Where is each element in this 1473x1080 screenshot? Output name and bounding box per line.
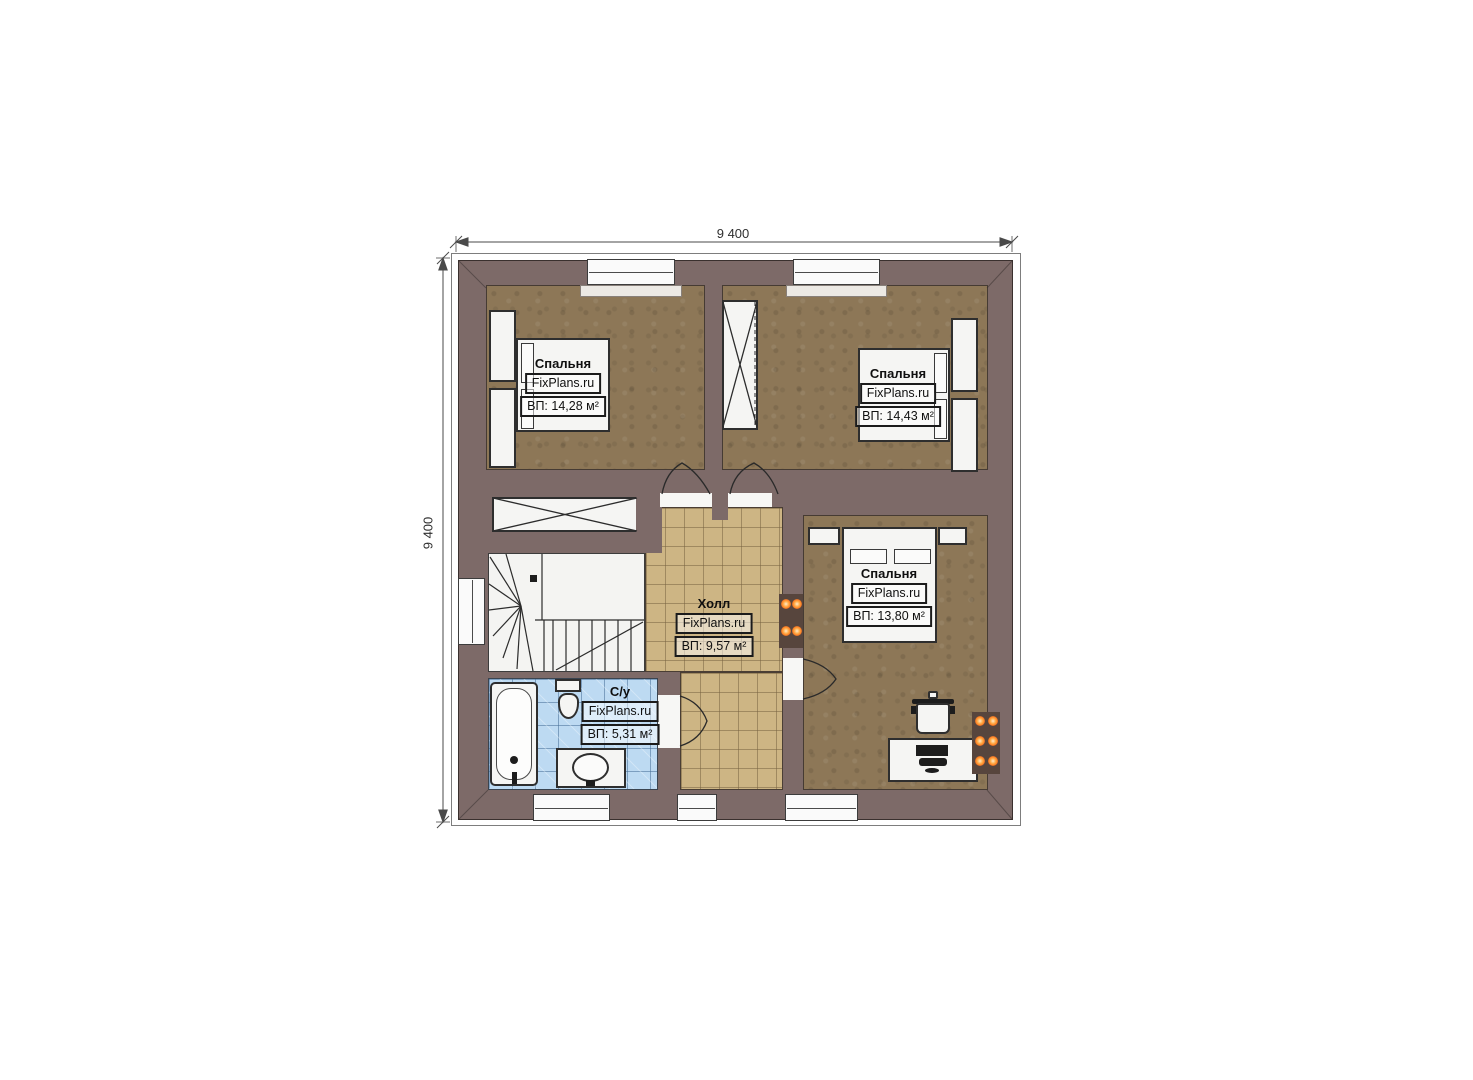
pot-symbol xyxy=(916,703,950,734)
window-glazing-line xyxy=(535,808,608,809)
nightstand-symbol xyxy=(938,527,967,545)
radiator-glow-dot xyxy=(781,626,791,636)
floor-plan-canvas: Спальня FixPlans.ru ВП: 14,28 м² Спальня… xyxy=(0,0,1473,1080)
pot-handle xyxy=(950,706,955,714)
window-sill xyxy=(580,285,682,297)
area-label: ВП: 14,28 м² xyxy=(520,396,606,417)
dimension-left-line xyxy=(436,252,450,828)
window-glazing-line xyxy=(787,808,856,809)
room-label-bedroom-right: Спальня FixPlans.ru ВП: 13,80 м² xyxy=(846,566,932,627)
radiator-glow-dot xyxy=(975,736,985,746)
window-glazing-line xyxy=(679,808,715,809)
mouse-symbol xyxy=(925,768,939,773)
window-bottom-bedroom xyxy=(785,794,858,821)
window-bottom-hall xyxy=(677,794,717,821)
radiator-glow-dot xyxy=(792,599,802,609)
pillow-symbol xyxy=(894,549,931,564)
room-name: Холл xyxy=(698,596,731,611)
room-label-bedroom-top-right: Спальня FixPlans.ru ВП: 14,43 м² xyxy=(855,366,941,427)
brand-label: FixPlans.ru xyxy=(582,701,659,722)
area-label: ВП: 5,31 м² xyxy=(581,724,660,745)
nightstand-symbol xyxy=(489,310,516,382)
brand-label: FixPlans.ru xyxy=(860,383,937,404)
keyboard-symbol xyxy=(919,758,947,766)
room-hall-floor-lower xyxy=(680,672,783,790)
radiator-glow-dot xyxy=(781,599,791,609)
toilet-tank-symbol xyxy=(555,679,581,692)
sink-faucet xyxy=(586,780,595,786)
room-name: Спальня xyxy=(870,366,926,381)
bathtub-tap xyxy=(512,772,517,784)
dimension-left-label: 9 400 xyxy=(421,513,436,554)
pot-handle xyxy=(911,706,916,714)
room-label-hall: Холл FixPlans.ru ВП: 9,57 м² xyxy=(675,596,754,657)
radiator-hall xyxy=(779,594,803,648)
nightstand-symbol xyxy=(951,398,978,472)
window-bottom-bathroom xyxy=(533,794,610,821)
area-label: ВП: 9,57 м² xyxy=(675,636,754,657)
area-label: ВП: 14,43 м² xyxy=(855,406,941,427)
window-glazing-line xyxy=(472,580,473,643)
nightstand-symbol xyxy=(808,527,840,545)
pillow-symbol xyxy=(850,549,887,564)
monitor-symbol xyxy=(916,745,948,756)
window-left-stairs xyxy=(458,578,485,645)
window-top-right xyxy=(793,259,880,285)
wall-stub-between-doors xyxy=(712,493,728,520)
brand-label: FixPlans.ru xyxy=(525,373,602,394)
radiator-glow-dot xyxy=(975,756,985,766)
radiator-glow-dot xyxy=(988,756,998,766)
window-top-left xyxy=(587,259,675,285)
door-opening-bedroom-right xyxy=(783,658,803,700)
radiator-glow-dot xyxy=(988,716,998,726)
window-glazing-line xyxy=(589,272,673,273)
window-sill xyxy=(786,285,887,297)
nightstand-symbol xyxy=(951,318,978,392)
brand-label: FixPlans.ru xyxy=(676,613,753,634)
bathtub-drain xyxy=(510,756,518,764)
radiator-bedroom-right xyxy=(972,712,1000,774)
door-opening-bedroom-top-right xyxy=(728,493,772,507)
room-name: Спальня xyxy=(861,566,917,581)
room-name: С/у xyxy=(610,684,630,699)
room-label-bedroom-top-left: Спальня FixPlans.ru ВП: 14,28 м² xyxy=(520,356,606,417)
room-name: Спальня xyxy=(535,356,591,371)
sink-symbol xyxy=(572,753,609,782)
radiator-glow-dot xyxy=(975,716,985,726)
radiator-glow-dot xyxy=(792,626,802,636)
room-label-bathroom: С/у FixPlans.ru ВП: 5,31 м² xyxy=(581,684,660,745)
window-glazing-line xyxy=(795,272,878,273)
radiator-glow-dot xyxy=(988,736,998,746)
stair-newel-post xyxy=(530,575,537,582)
nightstand-symbol xyxy=(489,388,516,468)
brand-label: FixPlans.ru xyxy=(851,583,928,604)
staircase-zone xyxy=(488,553,645,672)
wardrobe-symbol-vertical xyxy=(722,300,758,430)
wall-pier xyxy=(636,497,662,553)
wardrobe-symbol-horizontal xyxy=(492,497,638,532)
dimension-top-label: 9 400 xyxy=(713,226,754,241)
bathtub-basin xyxy=(496,688,532,780)
door-opening-bedroom-top-left xyxy=(660,493,712,507)
pot-lid-knob xyxy=(928,691,938,699)
door-opening-bathroom xyxy=(658,695,680,748)
area-label: ВП: 13,80 м² xyxy=(846,606,932,627)
